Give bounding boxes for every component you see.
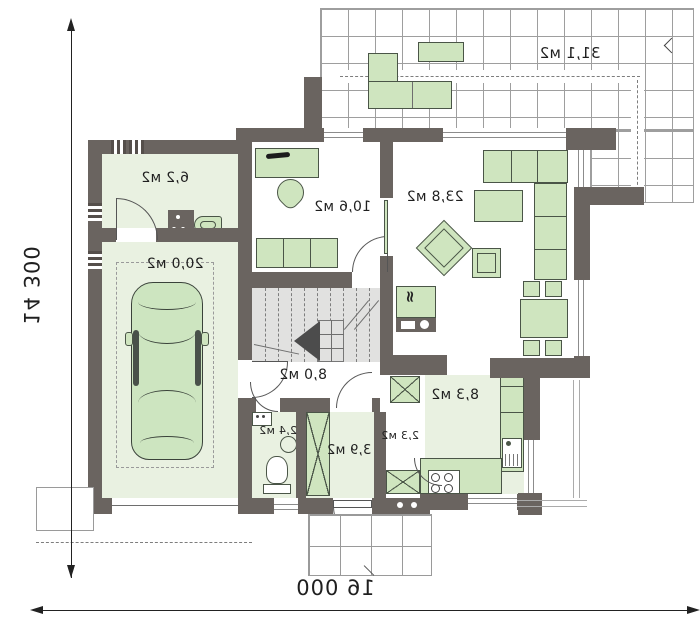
- basin-dot: [262, 415, 265, 418]
- dim-line-left: [71, 22, 72, 578]
- car-rear-window: [138, 390, 196, 416]
- sofa-divider: [310, 239, 311, 267]
- dimension-arrow-icon: [687, 606, 700, 614]
- pouf: [472, 248, 501, 278]
- wall-office-bottom: [252, 272, 352, 288]
- car-hood-line: [138, 294, 196, 310]
- car-side-window-left: [133, 330, 139, 386]
- wall-top-1: [236, 128, 324, 142]
- wall-terrace-stub: [574, 187, 644, 205]
- floor-plan-canvas: ≈: [0, 0, 700, 628]
- armchair-seat: [424, 228, 464, 268]
- sofa-divider: [511, 151, 512, 182]
- stair-hall-area-label: 8,0 м2: [265, 367, 341, 387]
- window: [574, 150, 590, 187]
- office-sofa: [256, 238, 338, 268]
- dimension-arrow-icon: [67, 18, 75, 31]
- stair-landing-line: [318, 334, 344, 335]
- kitchen-area-label: 8,3 м2: [417, 387, 493, 407]
- burner: [444, 473, 453, 482]
- vent-window: [111, 140, 126, 154]
- sink-faucet-dot: [506, 441, 511, 446]
- vent-window: [129, 140, 144, 154]
- car-mirror-right: [201, 332, 209, 346]
- pouf-inner: [477, 253, 496, 273]
- car-trunk-line: [140, 436, 194, 450]
- dining-chair: [545, 340, 562, 356]
- dimension-arrow-icon: [67, 565, 75, 578]
- armchair: [416, 220, 473, 277]
- entry-hall-area-label: 3,9 м2: [315, 443, 383, 461]
- door-leaf: [116, 198, 117, 240]
- dimension-arrow-icon: [30, 606, 43, 614]
- fireplace-slot: [401, 321, 415, 329]
- window: [324, 128, 363, 142]
- ledge-line: [579, 380, 580, 498]
- terrace-sofa-horizontal: [368, 81, 452, 109]
- garage-area-label: 20,0 м2: [130, 256, 220, 276]
- car-mirror-left: [125, 332, 133, 346]
- stairs-direction-arrow-icon: [294, 321, 320, 361]
- wall-entry-top-a: [302, 398, 330, 412]
- vestibule-area-label: 6,2 м2: [125, 170, 205, 190]
- window: [468, 494, 517, 510]
- stair-landing-line: [318, 348, 344, 349]
- sofa-divider: [283, 239, 284, 267]
- stair-tread: [278, 288, 279, 362]
- dim-line-bottom: [36, 610, 694, 611]
- wall-kitchen-bottom-right: [517, 494, 542, 510]
- corner-sofa-side: [534, 183, 567, 280]
- terrace-table: [418, 42, 464, 62]
- fireplace-icon: ≈: [398, 290, 420, 312]
- sofa-divider: [537, 151, 538, 182]
- ledge-line: [517, 506, 587, 507]
- ledge-line: [517, 500, 587, 501]
- terrace-sofa-divider: [412, 82, 413, 108]
- wall-left: [88, 140, 102, 514]
- ledge-line: [573, 380, 574, 498]
- entrance-porch-tiles: [308, 514, 432, 576]
- dim-label-left: 14 300: [17, 225, 43, 345]
- vent-window: [88, 203, 102, 221]
- wall-kitchen-top-right: [490, 358, 587, 378]
- car-windshield: [138, 318, 196, 344]
- wall-right-1: [574, 142, 590, 150]
- corner-sofa-top: [483, 150, 568, 183]
- stair-tread: [369, 288, 370, 362]
- dining-table: [520, 299, 568, 338]
- roof-overhang-line-v: [637, 80, 638, 190]
- stair-tread: [265, 288, 266, 362]
- door-arc-office: [352, 236, 388, 272]
- garage-door-line: [112, 505, 238, 506]
- dim-label-bottom: 16 000: [255, 576, 415, 600]
- driveway-edge-dashed: [36, 542, 252, 543]
- sofa-divider: [535, 249, 566, 250]
- window: [524, 440, 540, 493]
- window-terrace-door: [443, 128, 566, 142]
- living-room-area-label: 23,8 м2: [392, 189, 478, 209]
- stair-landing-line: [331, 320, 332, 362]
- dining-chair: [545, 281, 562, 297]
- dining-chair: [523, 281, 540, 297]
- counter-divider: [500, 412, 524, 413]
- wall-kitchen-top-left: [380, 355, 447, 375]
- corridor-cabinet-bottom: [386, 470, 420, 494]
- corridor-cabinet-top: [390, 376, 420, 403]
- wall-center-vertical-lower: [238, 398, 252, 514]
- wall-kitchen-right-upper: [524, 378, 540, 440]
- door-leaf: [252, 361, 288, 362]
- dining-chair: [523, 340, 540, 356]
- corridor-area-label: 2,3 м2: [372, 429, 428, 445]
- garage-door: [112, 498, 238, 514]
- wall-entry-bottom-2: [298, 498, 333, 514]
- wall-top-2: [363, 128, 443, 142]
- wall-entry-bottom-1: [238, 498, 274, 514]
- driveway-pad: [36, 487, 94, 531]
- burner: [444, 484, 453, 493]
- wall-dot: [397, 502, 403, 508]
- toilet-tank: [263, 484, 291, 494]
- window: [574, 280, 590, 356]
- sink-drainer: [505, 454, 519, 466]
- wall-center-vertical-upper: [238, 128, 252, 360]
- wall-segment: [102, 228, 116, 242]
- toilet-bowl: [266, 456, 288, 484]
- wall-entry-top-b: [372, 398, 380, 412]
- vent-window: [88, 251, 102, 269]
- wall-dot: [411, 502, 417, 508]
- terrace-area-label: 31,1 м2: [520, 44, 620, 66]
- sofa-divider: [535, 216, 566, 217]
- wc-area-label: 2,4 м2: [250, 424, 306, 440]
- coffee-table: [474, 190, 523, 222]
- fireplace-dot: [420, 320, 429, 329]
- door-arc-entry-hall: [336, 372, 372, 408]
- office-area-label: 10,6 м2: [300, 199, 385, 219]
- basin-dot: [256, 415, 259, 418]
- window: [274, 500, 298, 512]
- counter-divider: [500, 386, 524, 387]
- panel-dot-1: [176, 215, 180, 219]
